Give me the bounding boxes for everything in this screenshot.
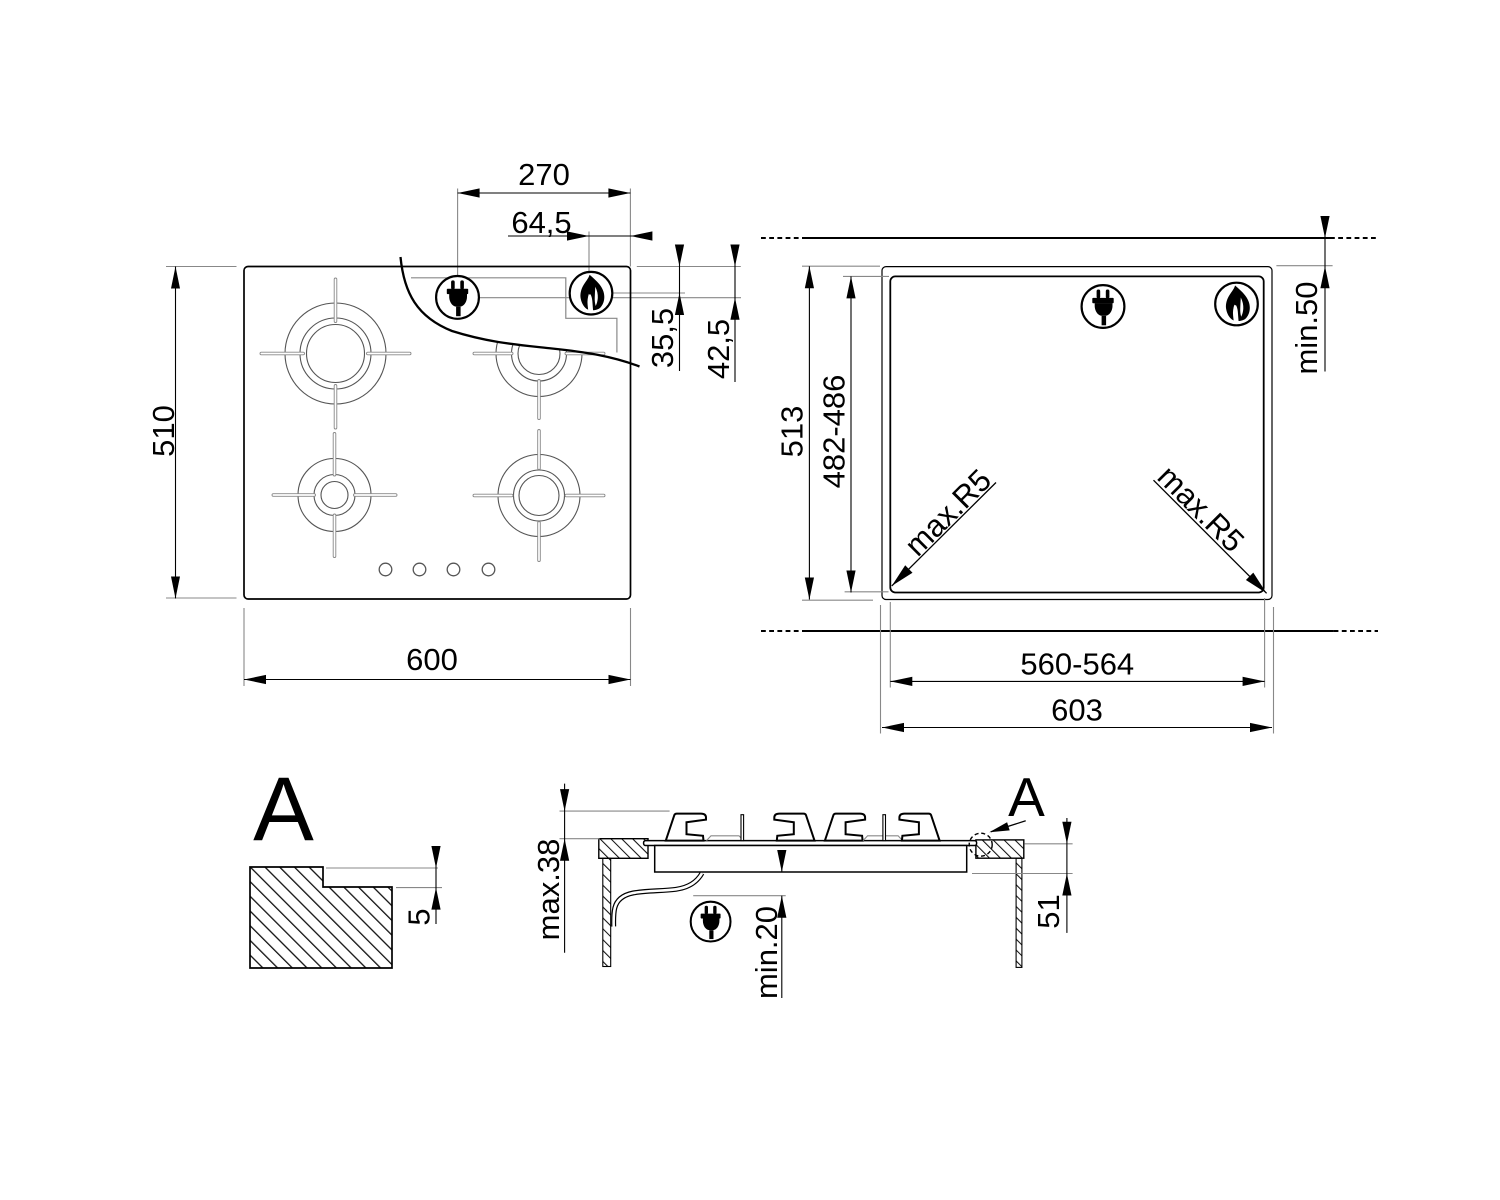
svg-text:513: 513 [774, 406, 809, 458]
svg-text:51: 51 [1031, 894, 1066, 928]
svg-text:603: 603 [1051, 692, 1103, 727]
svg-text:482-486: 482-486 [816, 375, 851, 489]
svg-text:600: 600 [406, 642, 458, 677]
svg-text:510: 510 [146, 405, 181, 457]
svg-text:min.20: min.20 [749, 906, 784, 999]
svg-text:270: 270 [518, 157, 570, 192]
svg-text:min.50: min.50 [1289, 281, 1324, 374]
svg-text:42,5: 42,5 [701, 319, 736, 379]
svg-text:5: 5 [401, 908, 436, 925]
svg-text:max.38: max.38 [531, 839, 566, 941]
svg-text:A: A [253, 760, 314, 861]
svg-text:A: A [1008, 766, 1045, 828]
svg-text:560-564: 560-564 [1020, 646, 1134, 681]
svg-text:64,5: 64,5 [511, 205, 571, 240]
svg-text:35,5: 35,5 [645, 308, 680, 368]
